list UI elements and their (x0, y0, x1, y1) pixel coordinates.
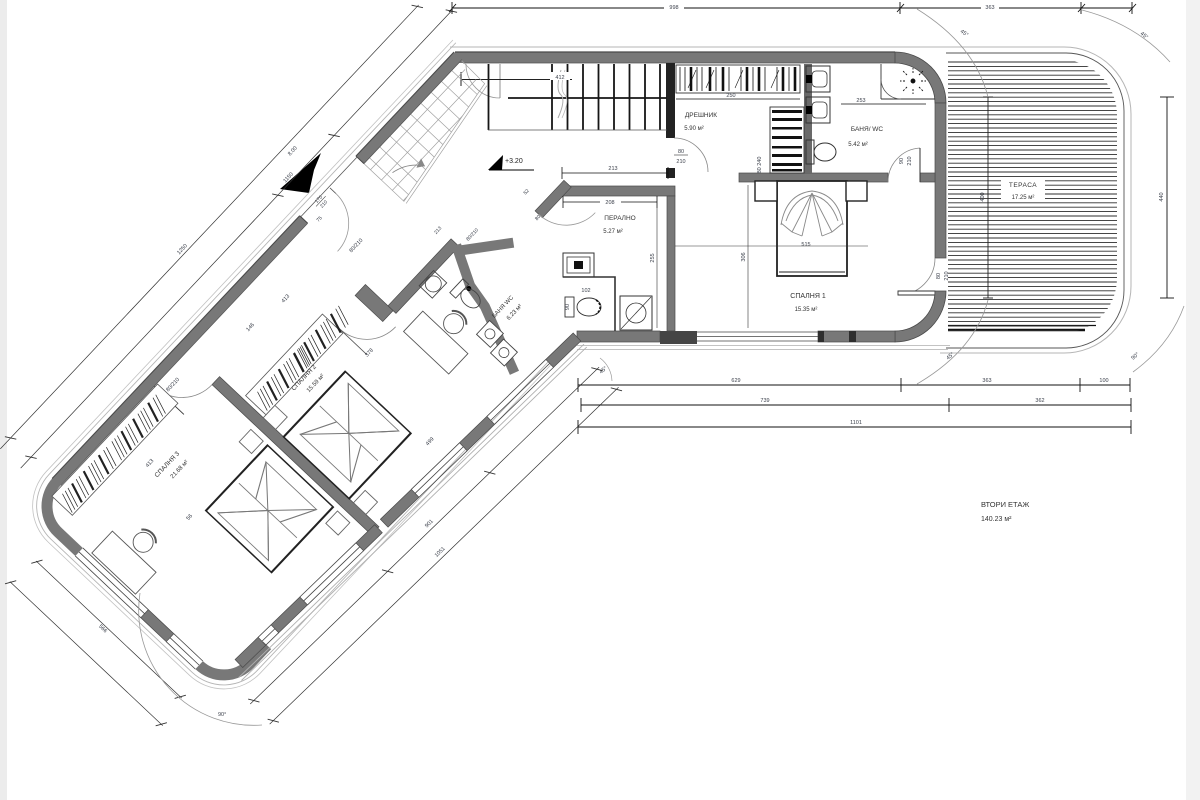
svg-text:253: 253 (856, 98, 865, 104)
svg-text:5.42 м²: 5.42 м² (848, 142, 867, 148)
svg-text:210: 210 (676, 159, 685, 165)
svg-text:213: 213 (608, 166, 617, 172)
svg-text:5.27 м²: 5.27 м² (603, 229, 622, 235)
svg-text:362: 362 (1035, 398, 1044, 404)
svg-text:+3.20: +3.20 (505, 158, 523, 165)
svg-text:90: 90 (899, 158, 905, 164)
svg-text:90°: 90° (218, 712, 226, 718)
svg-text:17.25 м²: 17.25 м² (1012, 195, 1035, 201)
svg-text:363: 363 (982, 378, 991, 384)
svg-text:ПЕРАЛНО: ПЕРАЛНО (604, 215, 635, 222)
svg-text:255: 255 (650, 253, 656, 262)
svg-text:15.35 м²: 15.35 м² (795, 307, 818, 313)
svg-text:1101: 1101 (850, 420, 862, 426)
svg-text:739: 739 (760, 398, 769, 404)
svg-text:ДРЕШНИК: ДРЕШНИК (685, 112, 717, 119)
svg-text:140.23 м²: 140.23 м² (981, 516, 1012, 523)
svg-text:250: 250 (726, 93, 735, 99)
svg-text:210: 210 (907, 156, 913, 165)
svg-text:210: 210 (944, 271, 950, 280)
svg-text:515: 515 (801, 242, 810, 248)
svg-text:412: 412 (555, 75, 564, 81)
svg-text:629: 629 (731, 378, 740, 384)
svg-text:100: 100 (1099, 378, 1108, 384)
svg-text:363: 363 (985, 5, 994, 11)
svg-text:306: 306 (741, 252, 747, 261)
svg-text:102: 102 (581, 288, 590, 294)
svg-text:80: 80 (936, 273, 942, 279)
svg-text:БАНЯ/ WC: БАНЯ/ WC (851, 126, 884, 133)
svg-text:208: 208 (605, 200, 614, 206)
svg-text:5.90 м²: 5.90 м² (684, 126, 703, 132)
svg-text:80: 80 (678, 149, 684, 155)
svg-text:90: 90 (565, 304, 571, 310)
svg-text:998: 998 (669, 5, 678, 11)
svg-text:400: 400 (980, 192, 986, 201)
svg-text:ВТОРИ ЕТАЖ: ВТОРИ ЕТАЖ (981, 500, 1029, 509)
svg-text:440: 440 (1159, 192, 1165, 201)
svg-text:СПАЛНЯ 1: СПАЛНЯ 1 (790, 293, 826, 300)
svg-text:80 240: 80 240 (757, 157, 763, 174)
svg-text:ТЕРАСА: ТЕРАСА (1009, 182, 1037, 189)
